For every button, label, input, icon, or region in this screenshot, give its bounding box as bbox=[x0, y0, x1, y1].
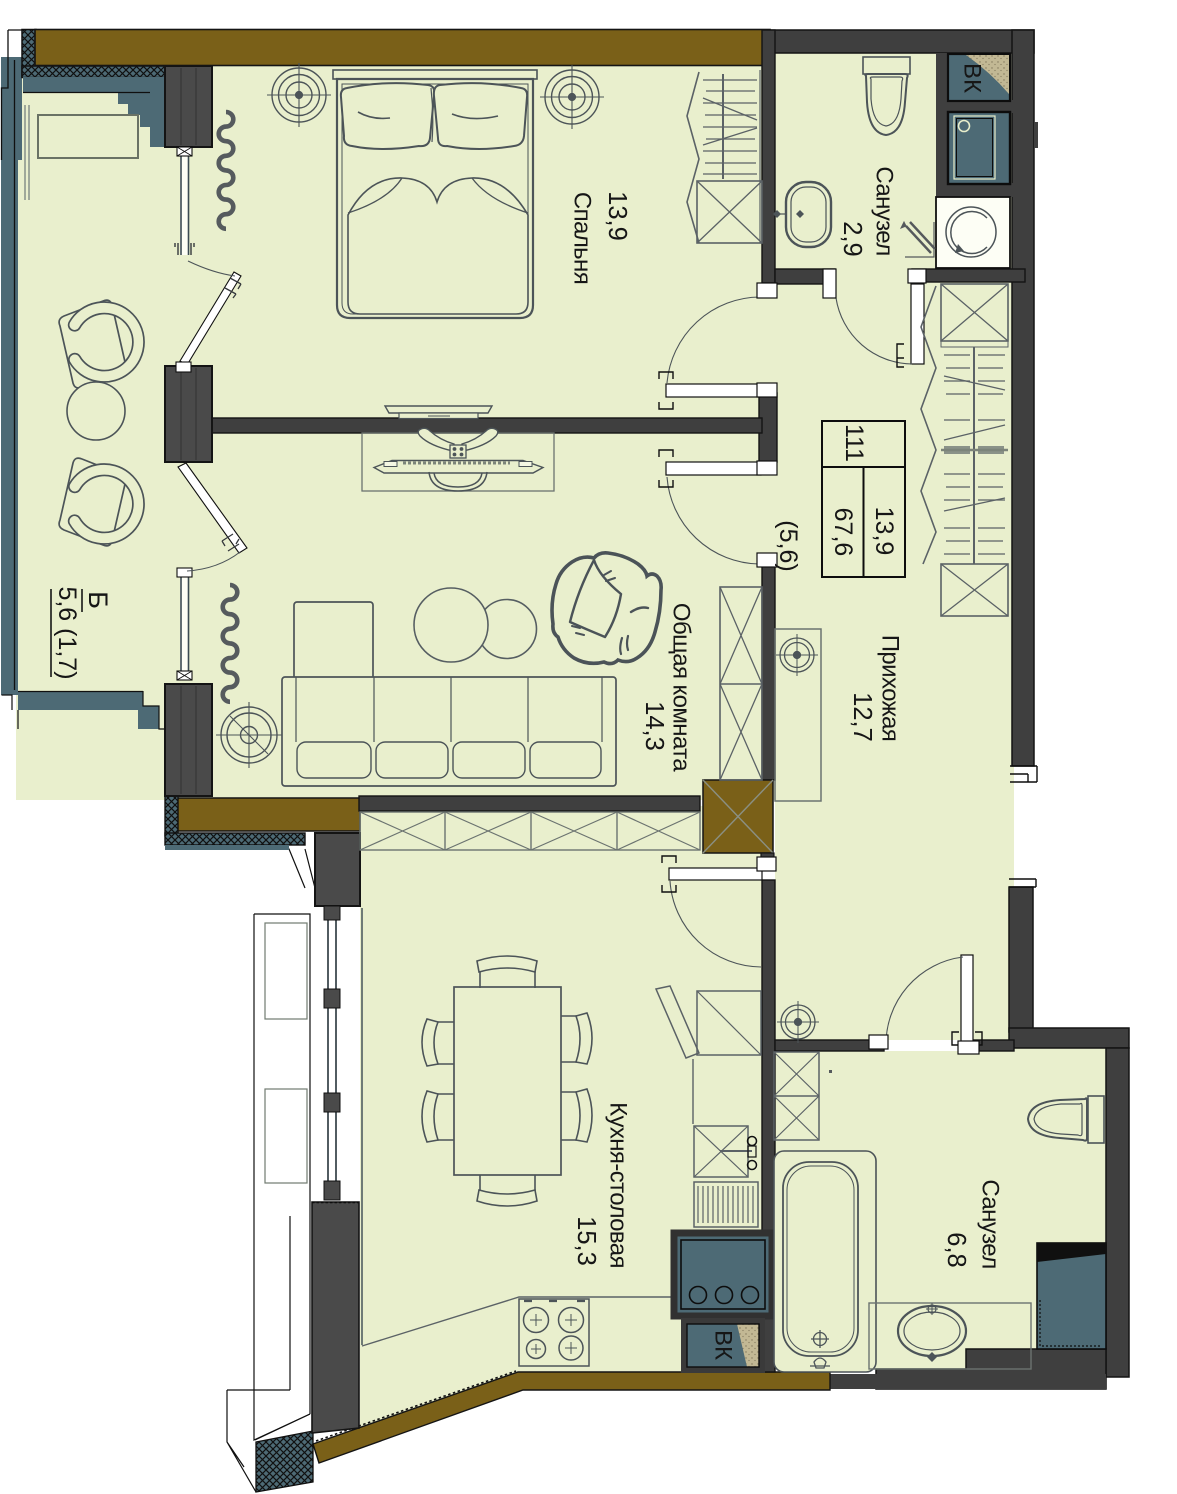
svg-text:12,7: 12,7 bbox=[848, 692, 876, 742]
svg-text:15,3: 15,3 bbox=[572, 1216, 600, 1266]
svg-text:Б: Б bbox=[83, 591, 113, 609]
svg-text:Общая комната: Общая комната bbox=[668, 603, 695, 772]
svg-text:Санузел: Санузел bbox=[977, 1179, 1004, 1268]
svg-text:Санузел: Санузел bbox=[871, 166, 898, 255]
svg-text:13,9: 13,9 bbox=[603, 191, 631, 241]
svg-text:2,9: 2,9 bbox=[838, 221, 866, 256]
svg-text:Кухня-столовая: Кухня-столовая bbox=[605, 1102, 632, 1268]
svg-text:111: 111 bbox=[840, 424, 868, 462]
svg-text:5,6 (1,7): 5,6 (1,7) bbox=[53, 586, 81, 679]
svg-text:67,6: 67,6 bbox=[829, 508, 857, 557]
svg-text:(5,6): (5,6) bbox=[774, 520, 802, 571]
svg-text:ВК: ВК bbox=[959, 63, 986, 93]
svg-text:6,8: 6,8 bbox=[942, 1232, 970, 1267]
svg-text:13,9: 13,9 bbox=[870, 507, 898, 556]
svg-text:ВК: ВК bbox=[710, 1330, 737, 1360]
svg-text:Прихожая: Прихожая bbox=[877, 635, 904, 741]
svg-text:14,3: 14,3 bbox=[640, 701, 668, 751]
svg-text:Спальня: Спальня bbox=[569, 192, 596, 284]
